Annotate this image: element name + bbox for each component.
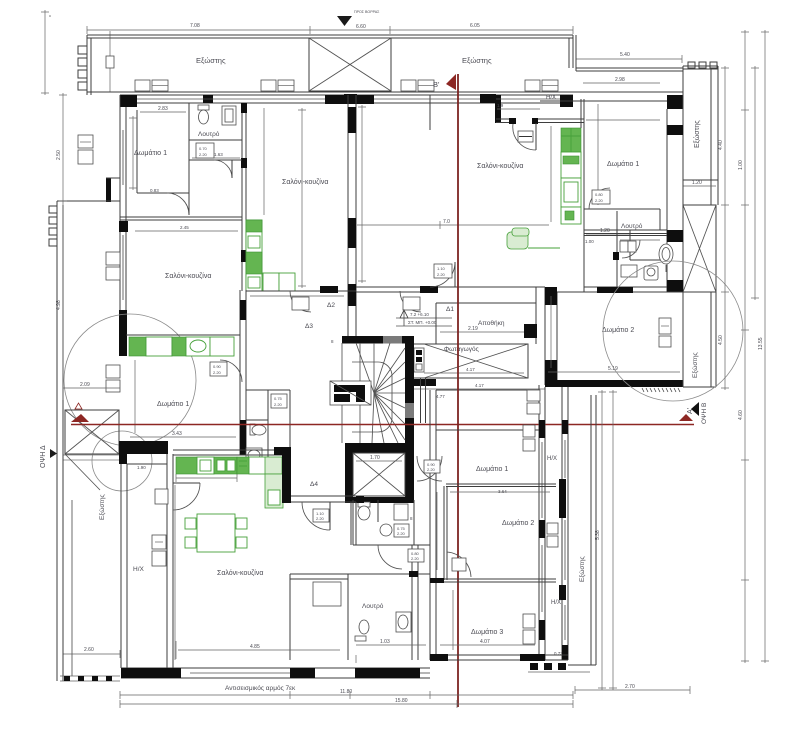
svg-text:2.60: 2.60 xyxy=(84,647,94,653)
svg-text:1.90: 1.90 xyxy=(137,465,146,470)
svg-text:Εξώστης: Εξώστης xyxy=(196,56,226,65)
svg-text:2.50: 2.50 xyxy=(56,150,62,160)
svg-text:Δωμάτιο 2: Δωμάτιο 2 xyxy=(502,519,534,527)
svg-text:1.70: 1.70 xyxy=(370,455,380,461)
svg-text:Αντισεισμικός αρμός 7εκ: Αντισεισμικός αρμός 7εκ xyxy=(225,684,296,692)
svg-text:0.80: 0.80 xyxy=(595,192,604,197)
svg-text:4.17: 4.17 xyxy=(475,383,484,388)
svg-text:4.07: 4.07 xyxy=(480,639,490,645)
svg-text:Δ2: Δ2 xyxy=(327,302,335,309)
svg-text:Δωμάτιο 1: Δωμάτιο 1 xyxy=(607,160,639,168)
svg-text:Φωταγωγός: Φωταγωγός xyxy=(444,345,479,353)
svg-text:Η/Χ: Η/Χ xyxy=(547,456,557,462)
svg-text:2.19: 2.19 xyxy=(468,326,478,332)
svg-text:2.45: 2.45 xyxy=(180,225,189,230)
svg-text:2.20: 2.20 xyxy=(213,370,222,375)
svg-text:Δ3: Δ3 xyxy=(305,323,313,330)
svg-text:11.80: 11.80 xyxy=(340,689,352,695)
svg-text:1.9: 1.9 xyxy=(497,103,504,108)
svg-text:7.08: 7.08 xyxy=(190,23,200,29)
svg-text:Δωμάτιο 2: Δωμάτιο 2 xyxy=(602,326,634,334)
svg-text:1.03: 1.03 xyxy=(380,639,390,645)
svg-text:4.85: 4.85 xyxy=(250,644,260,650)
svg-text:2.20: 2.20 xyxy=(274,402,283,407)
svg-text:Σαλόνι-κουζίνα: Σαλόνι-κουζίνα xyxy=(477,162,523,170)
svg-text:Εξώστης: Εξώστης xyxy=(691,352,699,378)
svg-text:7.0: 7.0 xyxy=(443,219,450,225)
svg-text:Η/Χ: Η/Χ xyxy=(546,95,556,101)
svg-text:ΟΨΗ Δ: ΟΨΗ Δ xyxy=(40,445,47,468)
svg-text:Δ4: Δ4 xyxy=(310,481,318,488)
svg-text:1.00: 1.00 xyxy=(585,239,594,244)
svg-text:6.60: 6.60 xyxy=(356,24,366,30)
svg-text:2.20: 2.20 xyxy=(199,152,208,157)
svg-text:3.43: 3.43 xyxy=(172,431,182,437)
svg-text:0.83: 0.83 xyxy=(150,188,159,193)
svg-text:4.50: 4.50 xyxy=(718,335,724,345)
svg-text:ΟΨΗ Β: ΟΨΗ Β xyxy=(701,403,708,424)
svg-text:2.83: 2.83 xyxy=(158,106,168,112)
svg-text:2.09: 2.09 xyxy=(80,382,90,388)
svg-text:ΣΤ. ΜΠ. +0.00: ΣΤ. ΜΠ. +0.00 xyxy=(408,320,437,325)
svg-text:5.38: 5.38 xyxy=(595,530,601,540)
svg-text:4.40: 4.40 xyxy=(718,140,724,150)
svg-text:15.80: 15.80 xyxy=(395,698,408,704)
svg-text:Β': Β' xyxy=(433,80,440,89)
svg-text:6.05: 6.05 xyxy=(470,23,480,29)
svg-text:Σαλόνι-κουζίνα: Σαλόνι-κουζίνα xyxy=(165,272,211,280)
svg-text:2.20: 2.20 xyxy=(427,467,436,472)
svg-text:Λουτρό: Λουτρό xyxy=(198,130,220,138)
svg-text:Δ1: Δ1 xyxy=(446,306,454,313)
svg-text:1.00: 1.00 xyxy=(738,160,744,170)
svg-text:2.70: 2.70 xyxy=(625,684,635,690)
svg-text:4.98: 4.98 xyxy=(56,300,62,310)
svg-text:Εξώστης: Εξώστης xyxy=(693,120,701,148)
svg-text:2.20: 2.20 xyxy=(397,531,406,536)
svg-text:1.20: 1.20 xyxy=(692,180,702,186)
svg-text:Η/Χ: Η/Χ xyxy=(551,600,561,606)
svg-text:0.70: 0.70 xyxy=(199,146,208,151)
svg-text:Η/Χ: Η/Χ xyxy=(133,566,145,573)
svg-text:2.20: 2.20 xyxy=(316,516,325,521)
svg-text:13.55: 13.55 xyxy=(758,337,764,350)
svg-text:2.20: 2.20 xyxy=(437,272,446,277)
svg-text:Λουτρό: Λουτρό xyxy=(362,602,384,610)
svg-text:1.63: 1.63 xyxy=(214,152,223,157)
svg-text:Δωμάτιο 1: Δωμάτιο 1 xyxy=(157,400,189,408)
svg-text:2.20: 2.20 xyxy=(595,198,604,203)
svg-text:1.10: 1.10 xyxy=(437,266,446,271)
svg-text:7.2 +6.10: 7.2 +6.10 xyxy=(410,312,429,317)
svg-text:Δωμάτιο 3: Δωμάτιο 3 xyxy=(471,628,503,636)
svg-text:ΠΡΟΣ ΒΟΡΡΑΣ: ΠΡΟΣ ΒΟΡΡΑΣ xyxy=(354,10,380,14)
svg-text:3.64: 3.64 xyxy=(498,489,507,494)
svg-text:Εξώστης: Εξώστης xyxy=(578,556,586,582)
svg-text:Εξώστης: Εξώστης xyxy=(462,56,492,65)
svg-text:4.77: 4.77 xyxy=(436,394,445,399)
svg-text:4.17: 4.17 xyxy=(466,367,475,372)
svg-text:Εξώστης: Εξώστης xyxy=(98,494,106,520)
svg-text:4.60: 4.60 xyxy=(738,410,744,420)
svg-text:0.90: 0.90 xyxy=(213,364,222,369)
svg-text:5.40: 5.40 xyxy=(620,52,630,58)
svg-text:2.20: 2.20 xyxy=(411,556,420,561)
svg-text:Δωμάτιο 1: Δωμάτιο 1 xyxy=(476,465,508,473)
svg-text:Αποθήκη: Αποθήκη xyxy=(478,320,505,327)
svg-text:Λουτρό: Λουτρό xyxy=(621,222,643,230)
svg-text:2.98: 2.98 xyxy=(615,77,625,83)
svg-text:0.75: 0.75 xyxy=(274,396,283,401)
svg-text:Σαλόνι-κουζίνα: Σαλόνι-κουζίνα xyxy=(282,178,328,186)
svg-text:Δωμάτιο 1: Δωμάτιο 1 xyxy=(134,148,167,157)
svg-text:Σαλόνι-κουζίνα: Σαλόνι-κουζίνα xyxy=(217,569,263,577)
